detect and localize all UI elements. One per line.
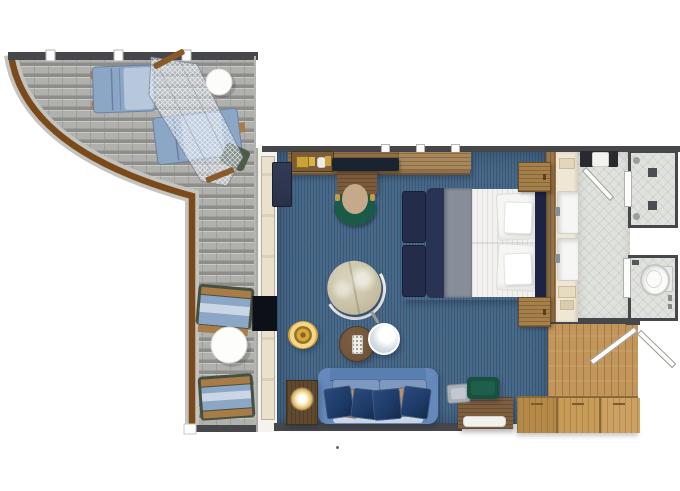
- toilet-seat: [646, 270, 662, 288]
- sofa-pillow-navy: [372, 388, 403, 421]
- wc-door: [623, 258, 631, 298]
- sofa: [318, 368, 438, 425]
- nightstand-top: [518, 162, 551, 192]
- desk-chair: [334, 184, 376, 226]
- bed-bench-1: [402, 191, 426, 243]
- towel-stack: [592, 152, 609, 167]
- console-slab: [332, 158, 399, 171]
- sun-lounger-1: [90, 65, 156, 113]
- wall-pillar-tab: [114, 50, 123, 61]
- vanity-item: [559, 158, 575, 169]
- sink-1: [557, 191, 579, 234]
- wall-tv: [252, 296, 277, 331]
- sofa-pillow-navy: [400, 385, 432, 420]
- tp-holder: [632, 260, 639, 265]
- bed-bench-2: [402, 245, 426, 297]
- deck-table-2: [211, 327, 247, 363]
- desk-chair-arm: [335, 194, 340, 201]
- balcony-bottom-notch: [184, 424, 196, 434]
- nightstand-handle: [543, 174, 546, 180]
- wc-fixture-1: [668, 295, 672, 301]
- green-chair-seat: [471, 381, 495, 395]
- dresser-tray: [463, 416, 506, 427]
- wall-pillar-tab: [46, 50, 55, 61]
- balcony-bottom-wall: [196, 425, 256, 432]
- closet-handle: [531, 403, 543, 405]
- tray-item-gold: [325, 156, 331, 166]
- entry-wall-stub: [626, 319, 640, 325]
- cabin-floor-plan: [0, 0, 680, 491]
- shower-control-2: [648, 201, 657, 210]
- headboard: [535, 186, 546, 300]
- bed-pillow-1: [496, 192, 537, 241]
- faucet-1: [555, 207, 560, 216]
- desk-chair-arm: [370, 194, 375, 201]
- bed-pillow-2: [496, 243, 537, 292]
- closet-handle: [572, 403, 584, 405]
- wardrobe-closets: [517, 396, 638, 433]
- minibar-tray: [291, 151, 334, 172]
- stool-top: [451, 387, 467, 399]
- gold-ottoman: [288, 321, 318, 349]
- nightstand-handle: [543, 309, 546, 315]
- closet-handle: [613, 403, 625, 405]
- bed-pillow-1-inner: [504, 201, 533, 234]
- shower-control-1: [648, 168, 657, 177]
- sink-2: [557, 238, 579, 281]
- shower-door: [624, 171, 632, 207]
- tray-item-gold: [309, 157, 315, 166]
- faucet-2: [555, 254, 560, 263]
- bed-pillow-2-inner: [503, 253, 532, 286]
- tray-item-gold: [296, 156, 309, 168]
- floor-mark: [336, 446, 339, 449]
- vanity-item: [558, 286, 576, 298]
- side-table-silver: [368, 323, 400, 355]
- vanity-item: [560, 300, 574, 310]
- upper-shelf: [398, 152, 471, 170]
- navy-cabinet: [272, 162, 292, 207]
- bed: [402, 186, 546, 300]
- tv-remote: [352, 335, 363, 354]
- deck-table-1: [206, 69, 232, 95]
- green-chair: [467, 377, 499, 399]
- desk-chair-seat: [342, 184, 368, 214]
- table-lamp: [290, 387, 314, 411]
- shower-head-2: [633, 213, 640, 220]
- nightstand-bottom: [518, 297, 551, 327]
- deck-chair-2: [198, 373, 256, 421]
- bed-runner: [444, 188, 474, 298]
- wc-fixture-2: [668, 304, 672, 309]
- shower-head-1: [633, 157, 640, 164]
